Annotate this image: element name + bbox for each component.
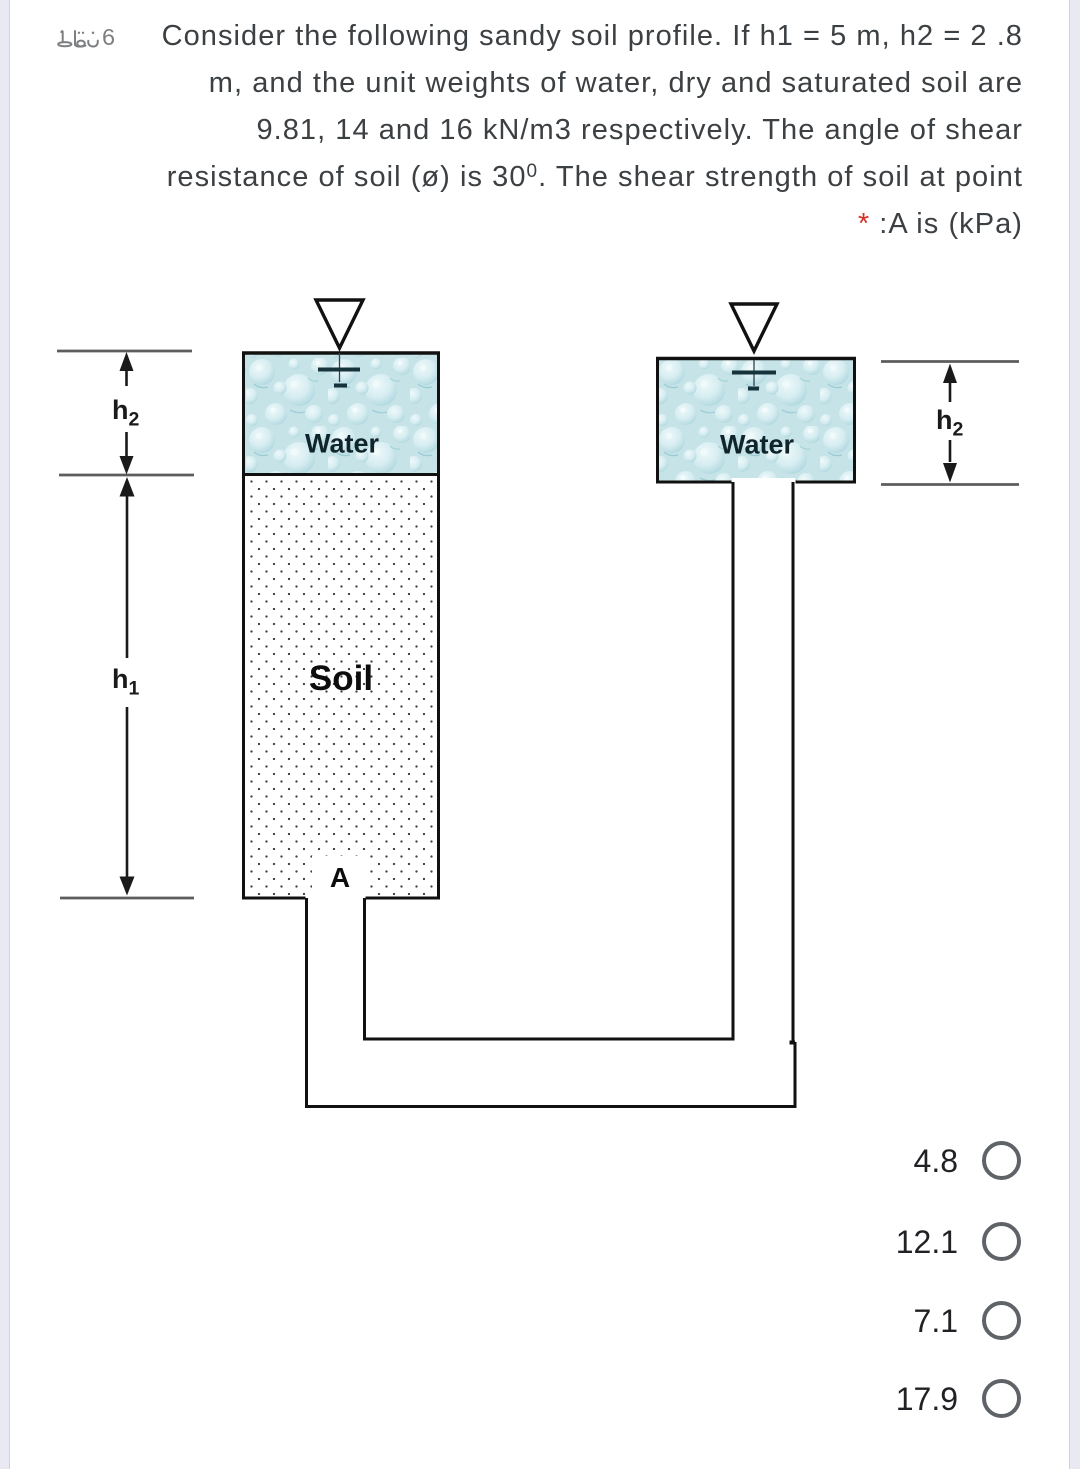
svg-text:h2: h2 [112,395,140,431]
svg-text:6: 6 [102,24,115,50]
svg-text:h1: h1 [112,664,140,700]
svg-text:Soil: Soil [309,659,373,698]
svg-text:Water: Water [305,429,380,459]
svg-text:Water: Water [720,430,795,460]
svg-text:A: A [330,862,350,893]
svg-text:h2: h2 [936,405,964,441]
